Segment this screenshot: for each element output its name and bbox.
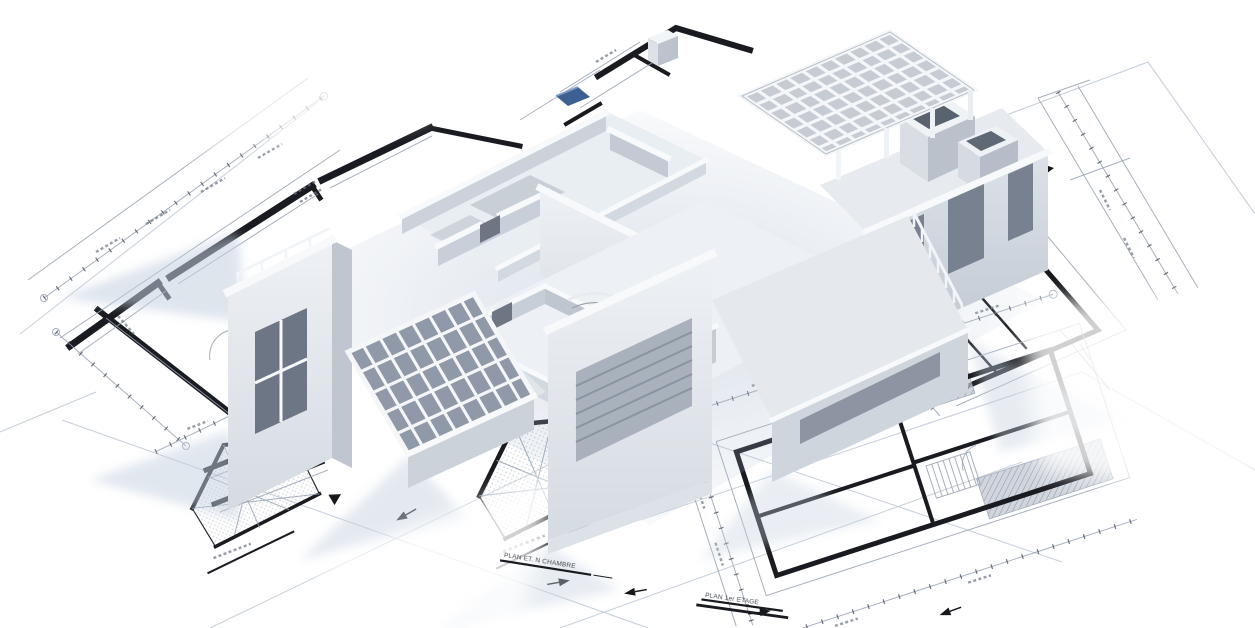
decorative-shape xyxy=(1100,190,1134,258)
left-volume xyxy=(228,228,352,510)
decorative-shape xyxy=(623,586,647,598)
decorative-shape xyxy=(968,90,973,120)
decorative-shape xyxy=(1048,289,1058,299)
stair-symbol xyxy=(926,452,980,499)
decorative-shape xyxy=(90,430,240,520)
decorative-shape xyxy=(836,150,841,180)
decorative-shape xyxy=(884,128,889,158)
decorative-shape xyxy=(0,392,96,432)
decorative-shape xyxy=(930,108,935,138)
decorative-shape xyxy=(938,603,962,618)
decorative-shape xyxy=(932,453,977,496)
facade-window xyxy=(1008,163,1033,241)
decorative-shape xyxy=(60,232,246,322)
decorative-shape xyxy=(1020,300,1255,500)
roof-plan-top xyxy=(520,28,750,124)
chimney-box xyxy=(648,30,678,66)
archviz-scene: PLAN ET. N CHAMBRE PLAN 1er ETAGE xyxy=(0,0,1255,628)
archviz-render: PLAN ET. N CHAMBRE PLAN 1er ETAGE xyxy=(0,0,1255,628)
decorative-shape xyxy=(698,605,787,618)
decorative-shape xyxy=(1038,86,1198,300)
decorative-shape xyxy=(596,50,616,62)
decorative-shape xyxy=(775,519,1136,628)
